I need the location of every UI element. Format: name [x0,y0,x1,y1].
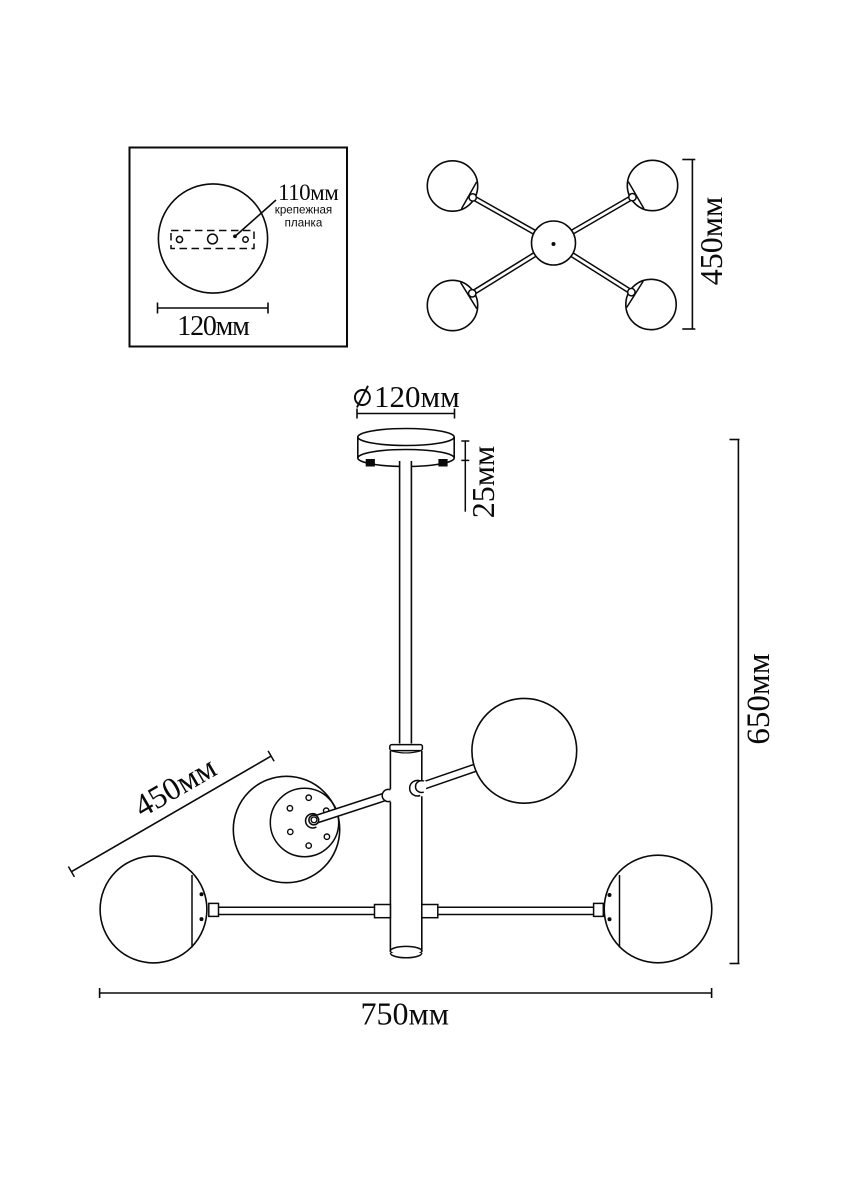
svg-text:650мм: 650мм [741,653,777,744]
svg-text:планка: планка [285,217,323,230]
svg-text:450мм: 450мм [693,197,729,286]
svg-text:25мм: 25мм [465,446,501,519]
svg-text:120мм: 120мм [374,379,460,414]
svg-text:110мм: 110мм [278,180,339,205]
svg-text:750мм: 750мм [360,996,449,1032]
svg-text:120мм: 120мм [177,311,250,342]
svg-text:крепежная: крепежная [275,204,332,217]
